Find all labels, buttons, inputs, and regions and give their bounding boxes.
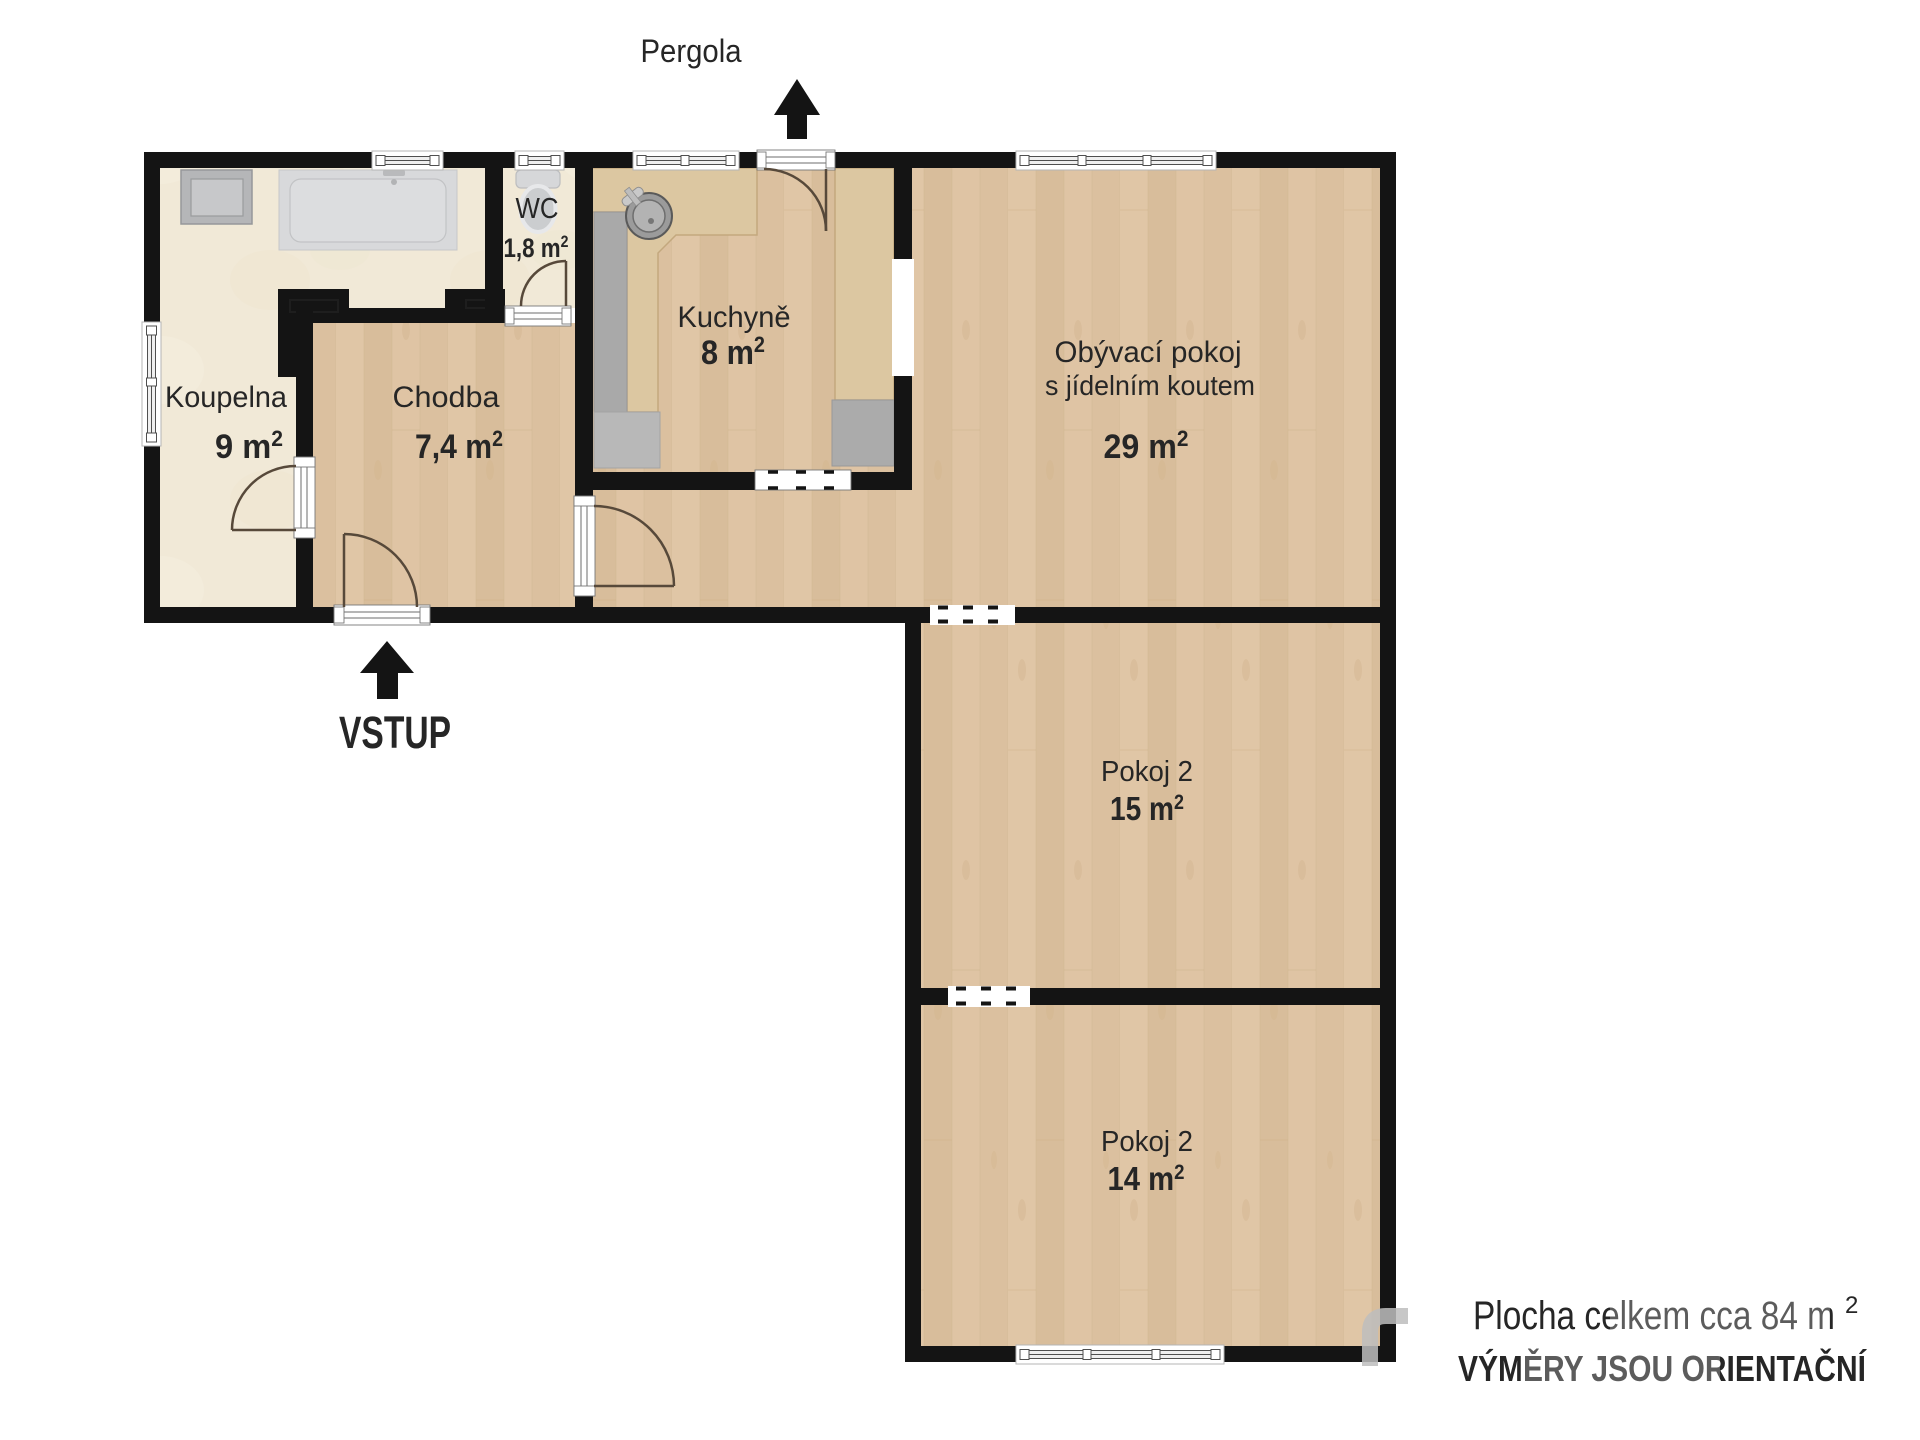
svg-text:14 m2: 14 m2 [1108,1160,1185,1197]
svg-text:29 m2: 29 m2 [1104,426,1189,466]
svg-text:VSTUP: VSTUP [339,707,451,758]
svg-text:Pokoj 2: Pokoj 2 [1101,756,1193,788]
svg-text:WC: WC [516,193,559,225]
svg-text:Pokoj 2: Pokoj 2 [1101,1126,1193,1158]
svg-text:Koupelna: Koupelna [165,381,287,414]
svg-text:Obývací pokoj: Obývací pokoj [1055,336,1242,369]
svg-text:7,4 m2: 7,4 m2 [415,426,503,466]
svg-text:2: 2 [1845,1292,1858,1319]
svg-text:1,8 m2: 1,8 m2 [504,232,569,263]
svg-text:Pergola: Pergola [641,33,742,69]
svg-text:s jídelním koutem: s jídelním koutem [1045,370,1255,401]
svg-text:15 m2: 15 m2 [1110,790,1184,827]
svg-text:Kuchyně: Kuchyně [678,301,791,334]
svg-text:Chodba: Chodba [393,381,500,414]
